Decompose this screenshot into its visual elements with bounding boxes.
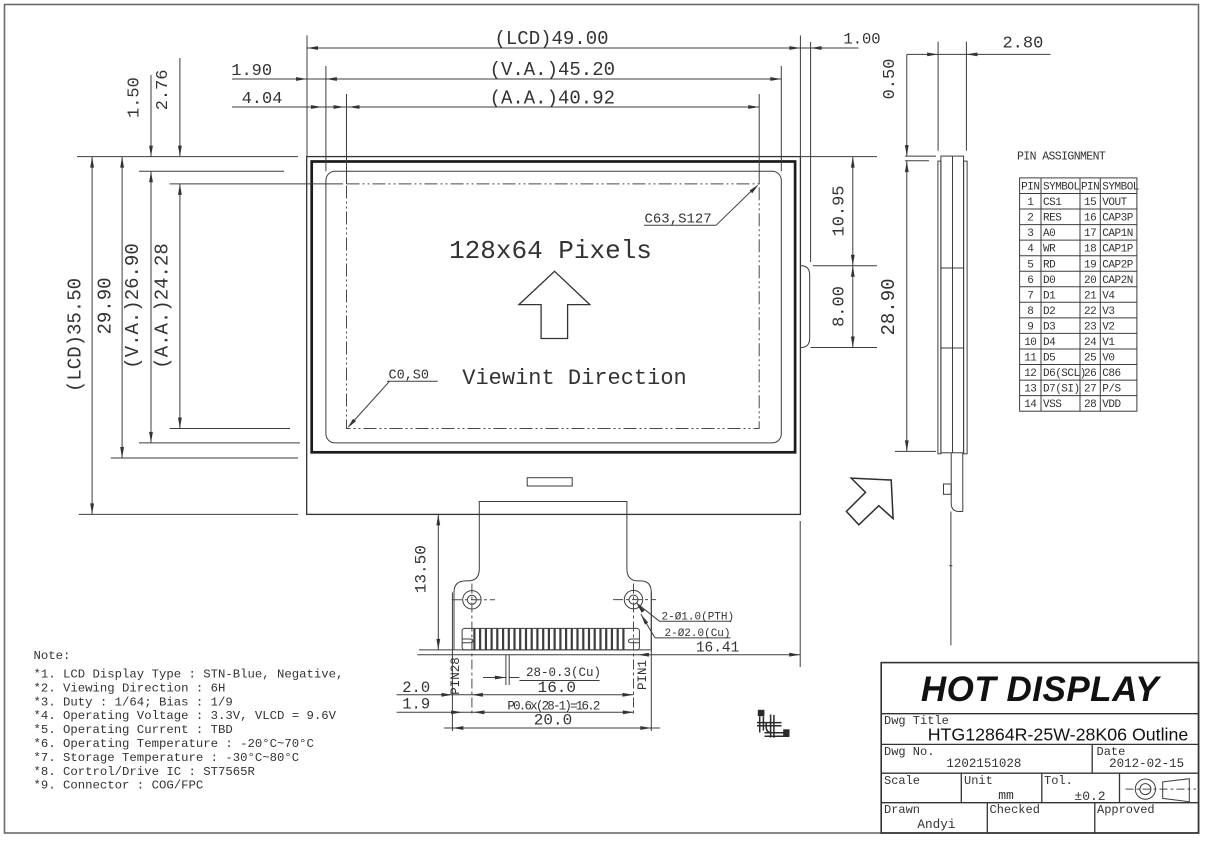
svg-text:6: 6: [1027, 275, 1033, 287]
svg-text:(V.A.)26.90: (V.A.)26.90: [122, 243, 144, 368]
svg-text:10: 10: [1024, 337, 1036, 349]
svg-text:29.90: 29.90: [94, 277, 116, 334]
svg-text:2012-02-15: 2012-02-15: [1109, 757, 1184, 771]
svg-text:(A.A.)40.92: (A.A.)40.92: [490, 88, 615, 110]
svg-text:Scale: Scale: [884, 774, 920, 788]
svg-text:V0: V0: [1102, 353, 1114, 365]
svg-text:12: 12: [1024, 368, 1036, 380]
svg-text:(LCD)49.00: (LCD)49.00: [494, 28, 608, 50]
svg-text:19: 19: [1084, 259, 1096, 271]
svg-text:13.50: 13.50: [412, 545, 430, 593]
svg-text:SYMBOL: SYMBOL: [1102, 182, 1139, 194]
svg-text:25: 25: [1084, 353, 1096, 365]
svg-text:2.0: 2.0: [402, 679, 430, 697]
svg-text:D2: D2: [1043, 306, 1055, 318]
svg-text:0.50: 0.50: [881, 59, 900, 100]
svg-text:*6. Operating Temperature : -2: *6. Operating Temperature : -20°C~70°C: [34, 737, 314, 751]
svg-text:28: 28: [1084, 399, 1096, 411]
svg-text:1.9: 1.9: [402, 696, 430, 714]
svg-text:8.00: 8.00: [831, 286, 850, 327]
svg-text:VOUT: VOUT: [1102, 197, 1127, 209]
svg-text:mm: mm: [998, 788, 1014, 803]
svg-text:4: 4: [1027, 244, 1034, 256]
svg-text:27: 27: [1084, 384, 1096, 396]
svg-text:10.95: 10.95: [831, 185, 850, 236]
svg-text:*8. Cortrol/Drive IC : ST7565R: *8. Cortrol/Drive IC : ST7565R: [34, 765, 256, 779]
svg-text:CAP1P: CAP1P: [1102, 244, 1133, 256]
svg-text:±0.2: ±0.2: [1074, 789, 1105, 804]
svg-text:(LCD)35.50: (LCD)35.50: [64, 278, 86, 392]
svg-text:1.00: 1.00: [843, 31, 880, 49]
svg-text:28-0.3(Cu): 28-0.3(Cu): [526, 666, 601, 680]
svg-text:128x64 Pixels: 128x64 Pixels: [449, 236, 652, 266]
svg-text:Approved: Approved: [1097, 803, 1155, 817]
svg-text:D3: D3: [1043, 322, 1055, 334]
svg-text:2.80: 2.80: [1002, 35, 1043, 54]
svg-text:CAP2N: CAP2N: [1102, 275, 1133, 287]
svg-text:1202151028: 1202151028: [946, 757, 1021, 771]
svg-text:7: 7: [1027, 290, 1033, 302]
svg-text:C86: C86: [1102, 368, 1120, 380]
svg-text:PIN: PIN: [1021, 182, 1039, 194]
svg-text:18: 18: [1084, 244, 1096, 256]
svg-text:Checked: Checked: [990, 803, 1040, 817]
svg-text:2-Ø1.0(PTH): 2-Ø1.0(PTH): [662, 612, 735, 624]
svg-text:22: 22: [1084, 306, 1096, 318]
svg-text:2.76: 2.76: [154, 69, 173, 110]
svg-text:Dwg No.: Dwg No.: [884, 745, 934, 759]
svg-text:CAP3P: CAP3P: [1102, 213, 1133, 225]
svg-text:9: 9: [1027, 322, 1033, 334]
svg-text:PIN ASSIGNMENT: PIN ASSIGNMENT: [1017, 151, 1106, 164]
svg-text:D7(SI): D7(SI): [1043, 384, 1080, 396]
svg-text:23: 23: [1084, 322, 1096, 334]
svg-text:P/S: P/S: [1102, 384, 1121, 396]
svg-text:17: 17: [1084, 228, 1096, 240]
svg-text:RES: RES: [1043, 213, 1062, 225]
svg-text:*7. Storage Temperature : -30°: *7. Storage Temperature : -30°C~80°C: [34, 751, 300, 765]
svg-text:Unit: Unit: [964, 774, 993, 788]
svg-text:CAP2P: CAP2P: [1102, 259, 1133, 271]
svg-text:Viewint Direction: Viewint Direction: [462, 366, 686, 391]
svg-text:15: 15: [1084, 197, 1096, 209]
svg-text:14: 14: [1024, 399, 1037, 411]
svg-text:8: 8: [1027, 306, 1033, 318]
svg-text:26: 26: [1084, 368, 1096, 380]
svg-text:5: 5: [1027, 259, 1033, 271]
svg-text:16.0: 16.0: [538, 679, 576, 697]
svg-text:Tol.: Tol.: [1044, 774, 1073, 788]
svg-text:16.41: 16.41: [696, 641, 740, 657]
svg-text:*4. Operating Voltage : 3.3V,: *4. Operating Voltage : 3.3V, VLCD = 9.6…: [34, 709, 337, 723]
svg-text:1.90: 1.90: [231, 62, 272, 81]
svg-text:V2: V2: [1102, 322, 1114, 334]
svg-text:1: 1: [1027, 197, 1034, 209]
svg-text:SYMBOL: SYMBOL: [1043, 182, 1080, 194]
svg-text:*3. Duty : 1/64; Bias : 1/9: *3. Duty : 1/64; Bias : 1/9: [34, 695, 233, 709]
svg-text:PIN1: PIN1: [636, 660, 650, 690]
svg-text:*9. Connector : COG/FPC: *9. Connector : COG/FPC: [34, 779, 204, 793]
svg-text:1.50: 1.50: [126, 77, 145, 118]
svg-text:28.90: 28.90: [878, 278, 900, 335]
svg-text:(V.A.)45.20: (V.A.)45.20: [490, 59, 615, 81]
svg-text:WR: WR: [1043, 244, 1056, 256]
svg-text:D6(SCL): D6(SCL): [1043, 368, 1086, 380]
svg-text:*1. LCD Display Type : STN-Blu: *1. LCD Display Type : STN-Blue, Negativ…: [34, 668, 344, 682]
svg-text:20: 20: [1084, 275, 1096, 287]
svg-text:D5: D5: [1043, 353, 1055, 365]
svg-text:PIN: PIN: [1081, 182, 1099, 194]
svg-text:PIN28: PIN28: [449, 657, 463, 695]
svg-text:VSS: VSS: [1043, 399, 1062, 411]
svg-text:RD: RD: [1043, 259, 1056, 271]
svg-text:3: 3: [1027, 228, 1033, 240]
svg-text:16: 16: [1084, 213, 1096, 225]
svg-text:11: 11: [1024, 353, 1037, 365]
svg-text:V4: V4: [1102, 290, 1115, 302]
svg-text:CAP1N: CAP1N: [1102, 228, 1133, 240]
svg-text:HOT DISPLAY: HOT DISPLAY: [921, 670, 1161, 709]
svg-text:4.04: 4.04: [242, 90, 283, 109]
svg-text:20.0: 20.0: [534, 712, 572, 730]
svg-text:CS1: CS1: [1043, 197, 1062, 209]
svg-text:V3: V3: [1102, 306, 1114, 318]
svg-text:D4: D4: [1043, 337, 1056, 349]
svg-text:(A.A.)24.28: (A.A.)24.28: [152, 243, 174, 368]
svg-text:24: 24: [1084, 337, 1097, 349]
svg-text:*2. Viewing Direction : 6H: *2. Viewing Direction : 6H: [34, 681, 226, 695]
svg-text:Drawn: Drawn: [884, 803, 920, 817]
svg-text:V1: V1: [1102, 337, 1115, 349]
svg-text:13: 13: [1024, 384, 1036, 396]
svg-text:2-Ø2.0(Cu): 2-Ø2.0(Cu): [665, 628, 731, 640]
svg-text:D1: D1: [1043, 290, 1056, 302]
svg-text:Note:: Note:: [34, 649, 71, 663]
svg-text:VDD: VDD: [1102, 399, 1121, 411]
svg-text:2: 2: [1027, 213, 1033, 225]
svg-text:*5. Operating Current : TBD: *5. Operating Current : TBD: [34, 723, 233, 737]
svg-text:D0: D0: [1043, 275, 1055, 287]
svg-text:A0: A0: [1043, 228, 1055, 240]
svg-text:Andyi: Andyi: [917, 817, 955, 832]
svg-text:HTG12864R-25W-28K06 Outline: HTG12864R-25W-28K06 Outline: [928, 725, 1189, 745]
svg-text:21: 21: [1084, 290, 1097, 302]
